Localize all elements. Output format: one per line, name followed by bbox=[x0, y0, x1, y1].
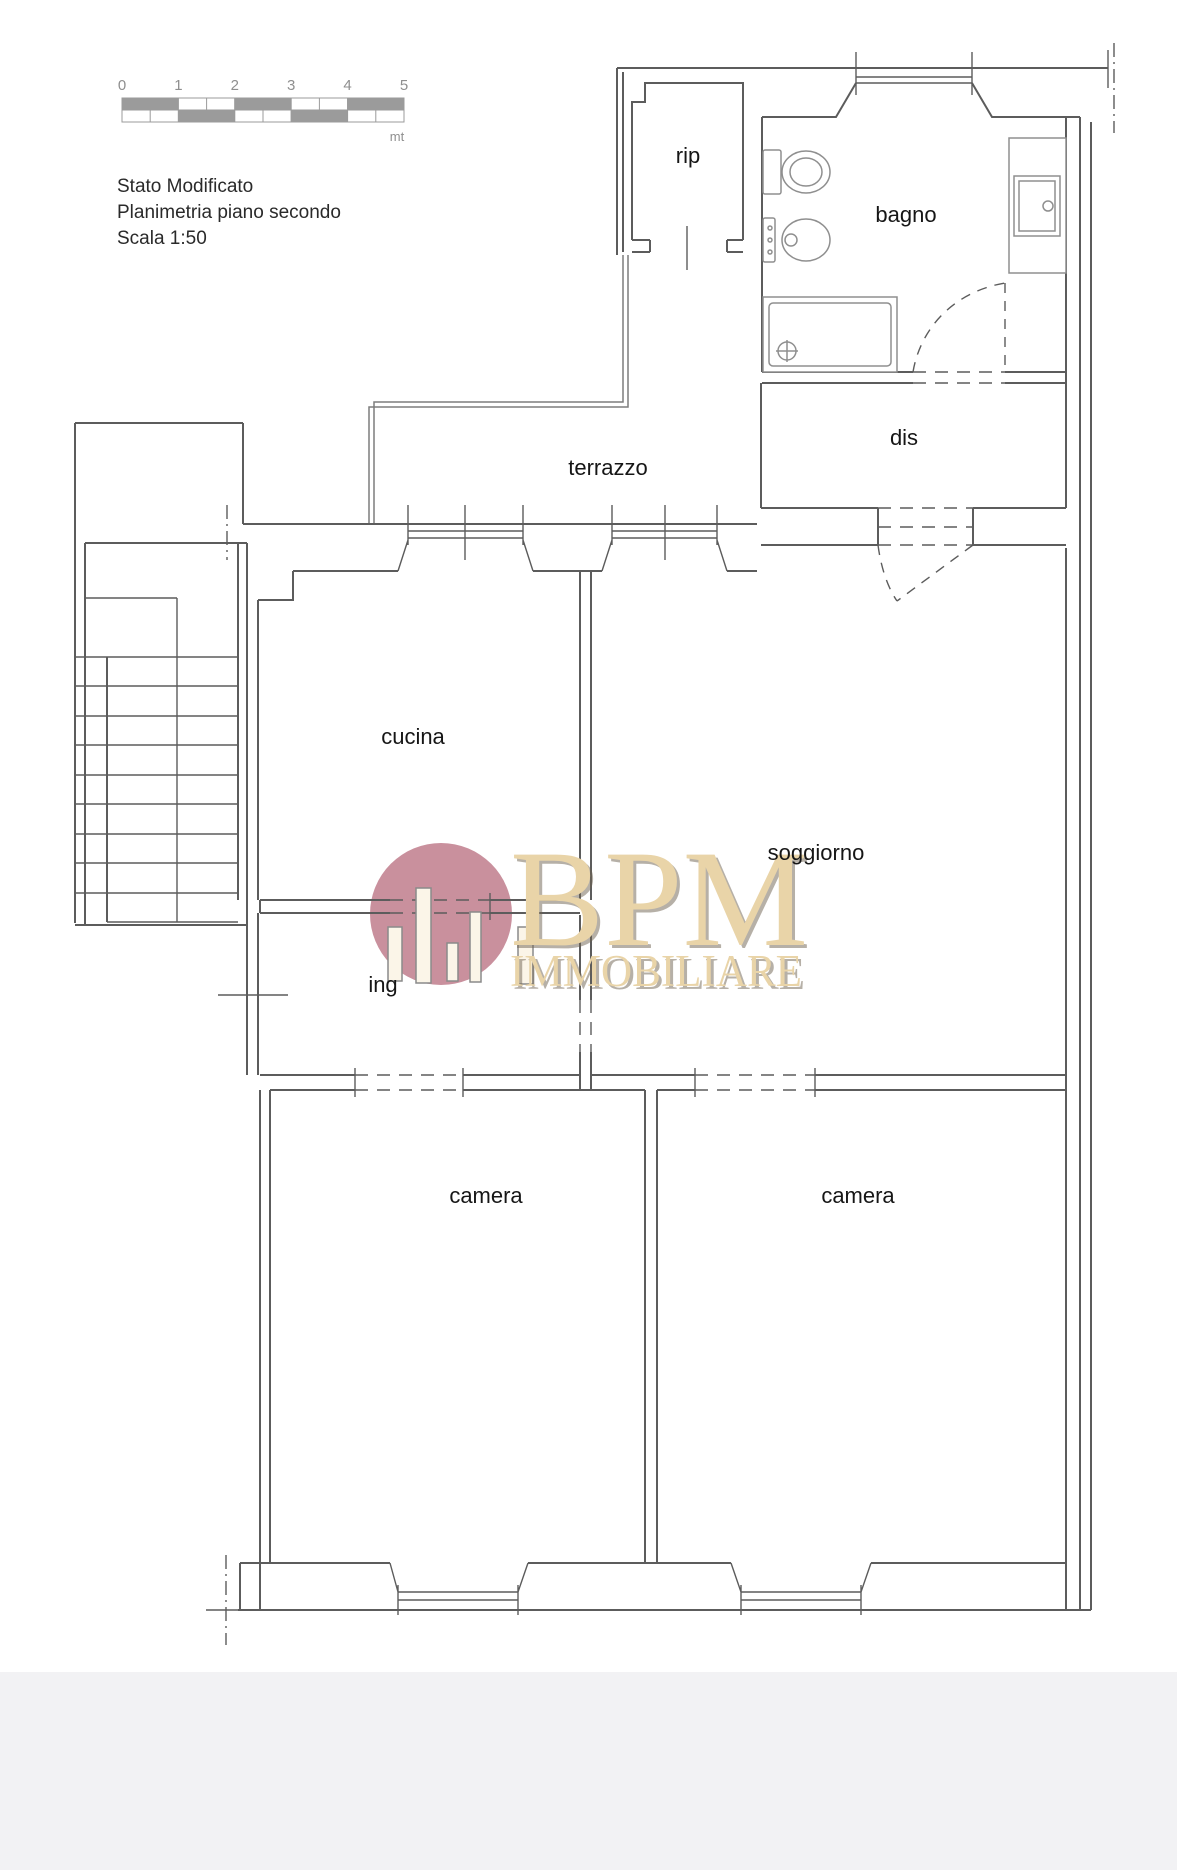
room-label-rip: rip bbox=[676, 143, 700, 168]
bathtub bbox=[763, 297, 897, 372]
room-label-cucina: cucina bbox=[381, 724, 445, 749]
shower-basin bbox=[1009, 138, 1066, 273]
scale-tick-1: 1 bbox=[174, 77, 182, 94]
floor-plan-page: 0 1 2 3 4 5 mt Stato Modificato Planimet… bbox=[0, 0, 1177, 1870]
floor-plan-svg: 0 1 2 3 4 5 mt Stato Modificato Planimet… bbox=[0, 0, 1177, 1870]
scale-unit: mt bbox=[390, 129, 405, 144]
title-line-2: Planimetria piano secondo bbox=[117, 202, 341, 223]
room-label-ing: ing bbox=[368, 972, 397, 997]
room-label-dis: dis bbox=[890, 425, 918, 450]
scale-tick-4: 4 bbox=[343, 77, 351, 94]
room-label-bagno: bagno bbox=[875, 202, 936, 227]
room-label-camera-left: camera bbox=[449, 1183, 523, 1208]
scale-tick-5: 5 bbox=[400, 77, 408, 94]
room-label-soggiorno: soggiorno bbox=[768, 840, 865, 865]
scale-tick-2: 2 bbox=[231, 77, 239, 94]
logo-subtitle: IMMOBILIARE bbox=[510, 946, 802, 996]
scale-tick-0: 0 bbox=[118, 77, 126, 94]
room-label-terrazzo: terrazzo bbox=[568, 455, 647, 480]
title-line-3: Scala 1:50 bbox=[117, 228, 207, 249]
toilet bbox=[763, 150, 830, 194]
title-line-1: Stato Modificato bbox=[117, 176, 253, 197]
bidet bbox=[763, 218, 830, 262]
room-label-camera-right: camera bbox=[821, 1183, 895, 1208]
bottom-strip bbox=[0, 1672, 1177, 1870]
scale-tick-3: 3 bbox=[287, 77, 295, 94]
